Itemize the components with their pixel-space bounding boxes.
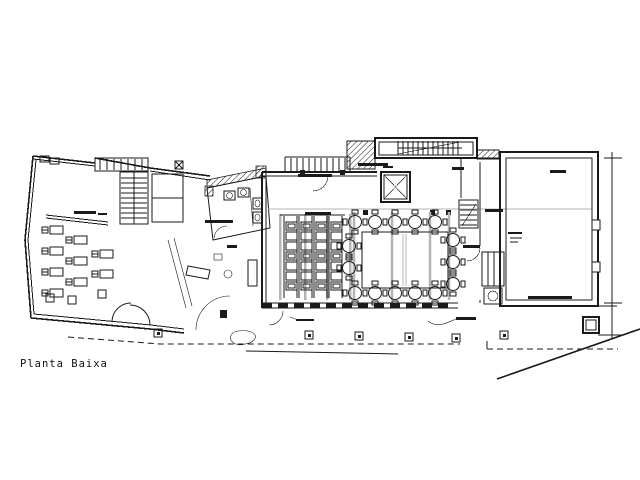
seating-rows xyxy=(280,214,350,300)
top-staircase xyxy=(375,138,477,158)
entrance-lobby xyxy=(112,238,257,330)
wc-room xyxy=(205,166,270,240)
dimension-lines xyxy=(560,152,622,338)
boundary-diagonal xyxy=(497,329,640,379)
elevator-shaft xyxy=(381,172,410,202)
floor-plan-drawing xyxy=(0,0,640,480)
terrace xyxy=(68,311,618,354)
left-wing xyxy=(25,156,210,333)
terrace-posts xyxy=(154,329,508,342)
left-wing-staircase xyxy=(120,172,148,224)
floor-plan-sheet: Planta Baixa xyxy=(0,0,640,480)
glazed-south-wall xyxy=(262,303,458,308)
reading-desks xyxy=(42,226,113,304)
round-tables xyxy=(337,210,465,305)
plan-title: Planta Baixa xyxy=(20,358,108,370)
